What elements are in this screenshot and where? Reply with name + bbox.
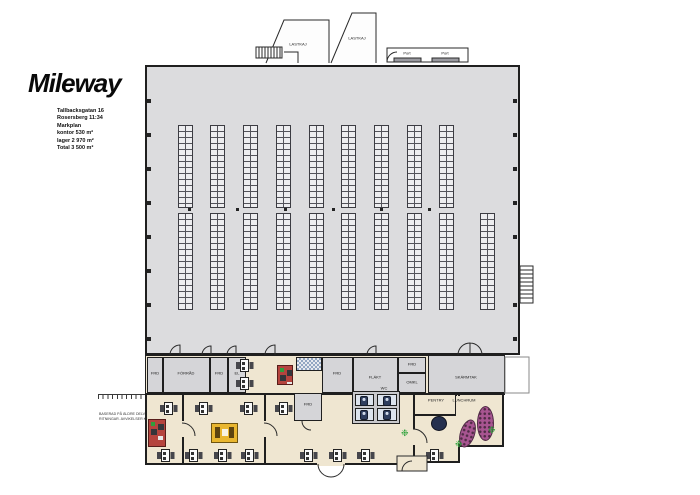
round-table-icon [431, 416, 447, 431]
storage-cabinet-icon [277, 365, 293, 385]
pallet-rack [178, 125, 193, 208]
wall-column [147, 167, 151, 171]
pallet-rack [309, 125, 324, 208]
partition-wall [182, 393, 184, 421]
wall-column [147, 235, 151, 239]
label-frd: FRD [333, 371, 341, 376]
workstation-icon [275, 402, 292, 415]
wall-column [147, 303, 151, 307]
outdoor-canopy [505, 357, 529, 393]
plant-icon: ❉ [401, 429, 409, 438]
wet-room-tiles [296, 357, 322, 371]
partition-wall [182, 437, 184, 465]
pallet-rack [374, 213, 389, 310]
wall-column [513, 99, 517, 103]
label-forrad: FÖRRÅD [178, 371, 195, 376]
port-door [432, 58, 459, 62]
toilet-icon [360, 396, 368, 406]
workstation-icon [240, 402, 257, 415]
workstation-icon [185, 449, 202, 462]
partition-wall [264, 437, 266, 465]
workstation-icon [329, 449, 346, 462]
workstation-icon [157, 449, 174, 462]
wall-column [513, 201, 517, 205]
storage-cabinet-icon [148, 419, 166, 447]
pallet-rack [276, 125, 291, 208]
wall-column [513, 303, 517, 307]
pallet-rack [407, 125, 422, 208]
plant-icon: ❉ [488, 426, 496, 435]
workstation-icon [236, 377, 253, 390]
label-port: Port [441, 51, 448, 56]
wall-column [147, 337, 151, 341]
pallet-rack [407, 213, 422, 310]
pallet-rack [243, 125, 258, 208]
label-lunchrum: LUNCHRUM [453, 398, 476, 403]
partition-wall [264, 393, 266, 421]
property-address-block: Tallbacksgatan 16 Rosersberg 11:34 Markp… [57, 108, 104, 152]
label-skarmtak: SKÄRMTAK [455, 375, 477, 380]
label-flakt: FLÄKT [369, 375, 381, 380]
pallet-rack [374, 125, 389, 208]
floor-plan-page: Mileway Tallbacksgatan 16 Rosersberg 11:… [0, 0, 700, 495]
pentry-wall [413, 414, 457, 416]
pallet-rack [480, 213, 495, 310]
exterior-stair [256, 47, 282, 58]
port-door [394, 58, 421, 62]
label-frd: FRD [408, 362, 416, 367]
address-line: Tallbacksgatan 16 [57, 108, 104, 115]
conference-table-icon [477, 406, 494, 441]
toilet-icon [360, 410, 368, 420]
column-marker [428, 208, 431, 211]
label-frd: FRD [304, 402, 312, 407]
door-opening [410, 429, 418, 445]
label-port: Port [403, 51, 410, 56]
label-omkl: OMKL [406, 380, 417, 385]
wall-column [513, 167, 517, 171]
toilet-icon [383, 396, 391, 406]
wall-column [513, 133, 517, 137]
workstation-icon [241, 449, 258, 462]
pallet-rack [341, 125, 356, 208]
pallet-rack [439, 213, 454, 310]
pallet-rack [210, 213, 225, 310]
wall-column [147, 133, 151, 137]
meeting-table-icon [211, 423, 238, 443]
label-frd: FRD [151, 371, 159, 376]
label-el: EL [235, 371, 240, 376]
address-line: lager 2 970 m² [57, 138, 104, 145]
wall-column [147, 99, 151, 103]
pallet-rack [309, 213, 324, 310]
room-frd-office [294, 393, 322, 421]
workstation-icon [195, 402, 212, 415]
address-line: kontor 530 m² [57, 130, 104, 137]
wall-column [147, 269, 151, 273]
workstation-icon [300, 449, 317, 462]
scale-bar [98, 394, 146, 399]
mileway-logo: Mileway [28, 68, 121, 99]
pallet-rack [210, 125, 225, 208]
pallet-rack [178, 213, 193, 310]
toilet-icon [383, 410, 391, 420]
column-marker [188, 208, 191, 211]
column-marker [332, 208, 335, 211]
label-pentry: PENTRY [428, 398, 444, 403]
label-frd: FRD [215, 371, 223, 376]
workstation-icon [357, 449, 374, 462]
pallet-rack [276, 213, 291, 310]
column-marker [380, 208, 383, 211]
workstation-icon [214, 449, 231, 462]
pallet-rack [243, 213, 258, 310]
wall-column [147, 201, 151, 205]
column-marker [284, 208, 287, 211]
port-canopy [387, 48, 468, 62]
label-lastkaj: LASTKAJ [289, 42, 306, 47]
wall-column [513, 337, 517, 341]
label-lastkaj: LASTKAJ [348, 36, 365, 41]
workstation-icon [160, 402, 177, 415]
exterior-stair [520, 266, 533, 303]
address-line: Total 3 500 m² [57, 145, 104, 152]
address-line: Rosersberg 11:34 [57, 115, 104, 122]
wall-column [513, 235, 517, 239]
workstation-icon [426, 449, 443, 462]
pallet-rack [341, 213, 356, 310]
label-wc: WC [381, 386, 388, 391]
column-marker [236, 208, 239, 211]
plant-icon: ❉ [455, 440, 463, 449]
pallet-rack [439, 125, 454, 208]
